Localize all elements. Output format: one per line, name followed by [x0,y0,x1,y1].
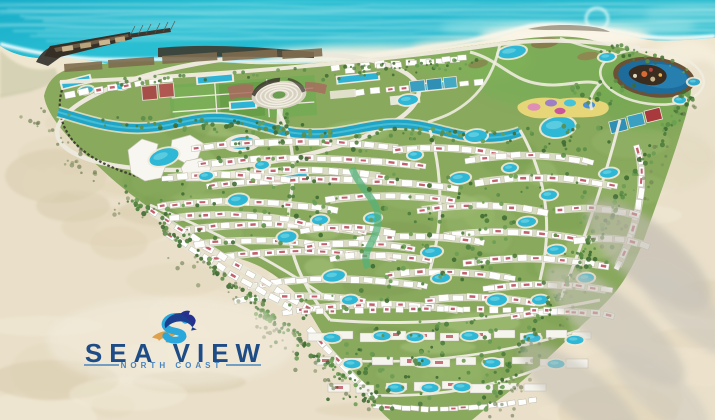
svg-text:NORTH COAST: NORTH COAST [121,361,224,370]
